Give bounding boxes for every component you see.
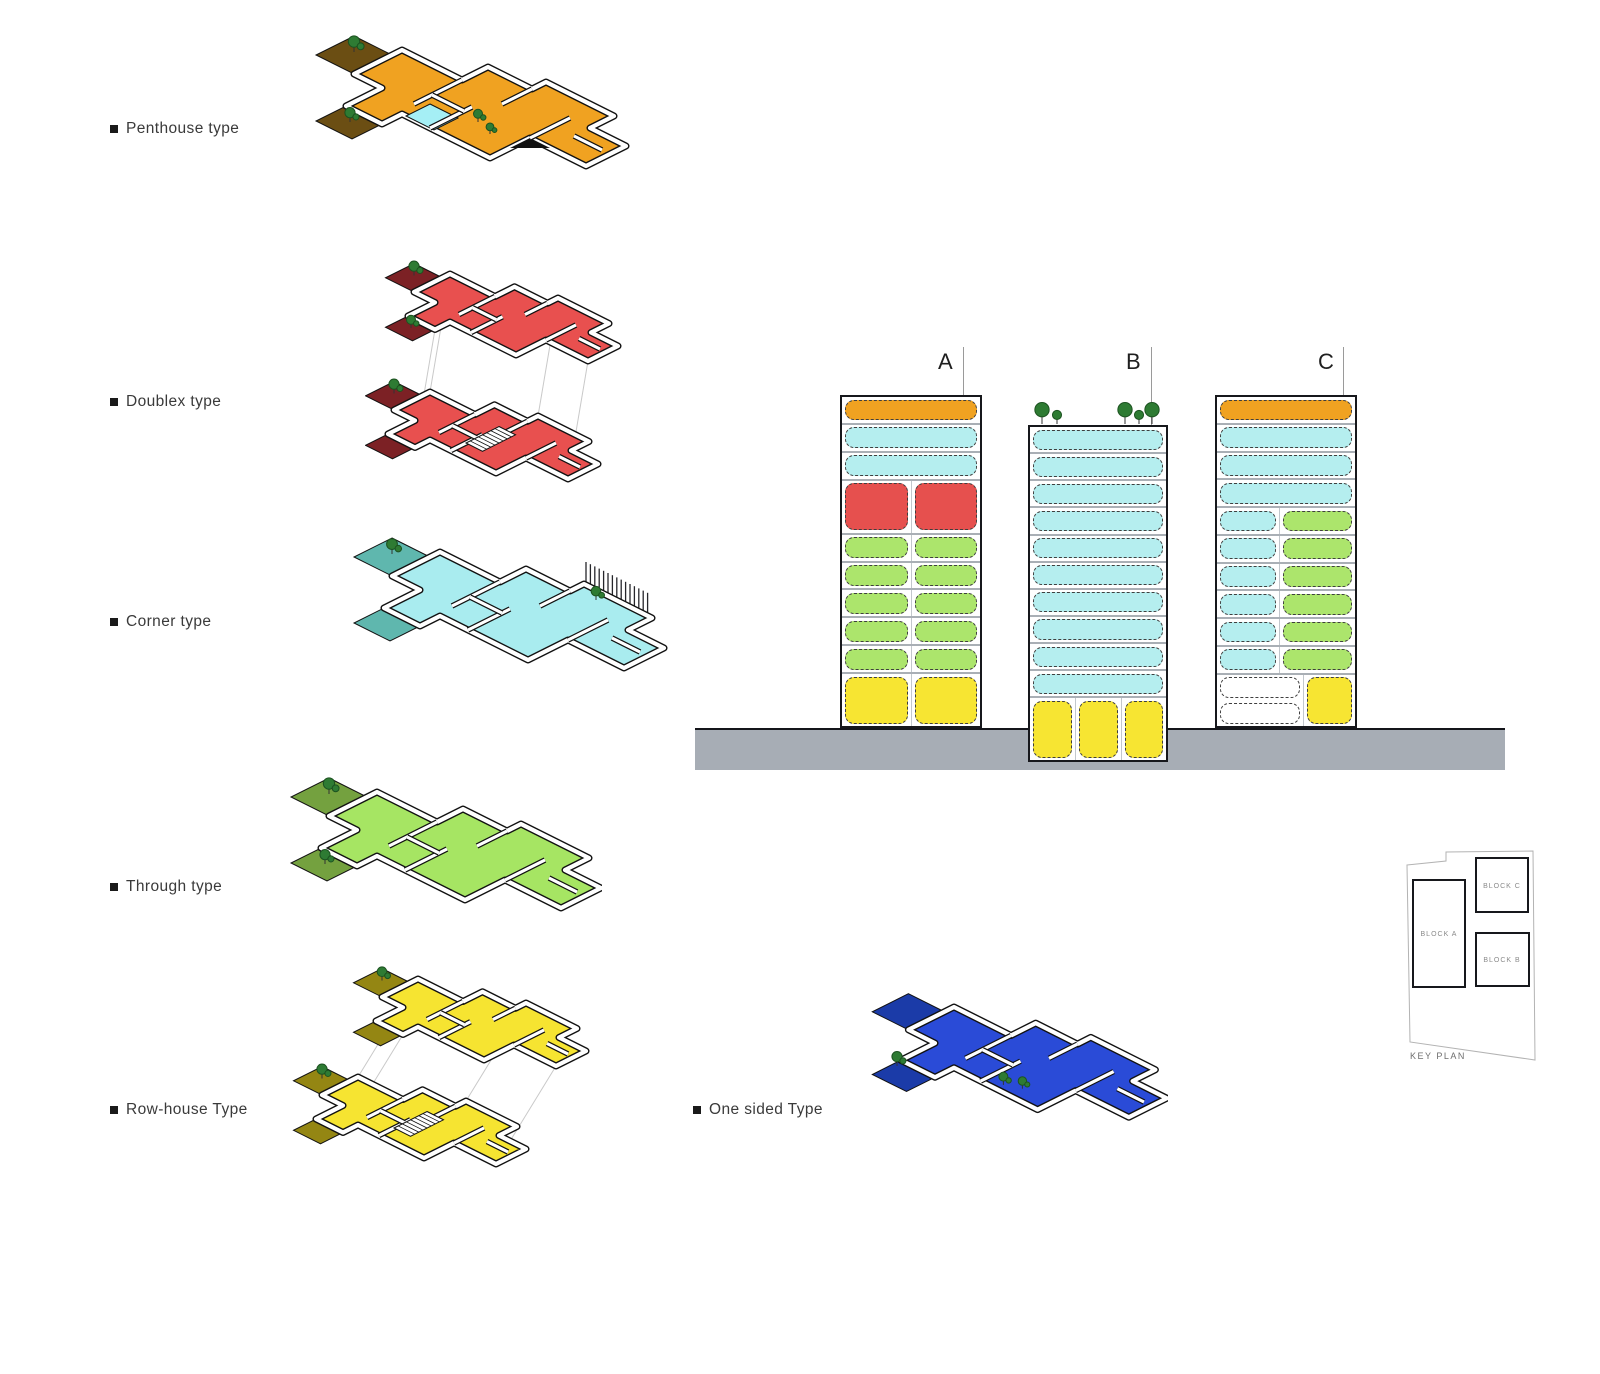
- floor-row: [1217, 589, 1355, 617]
- floor-row: [1217, 506, 1355, 534]
- floor-row: [1030, 588, 1166, 615]
- unit-column: [1217, 425, 1355, 451]
- roof-trees-icon: [1030, 397, 1170, 425]
- unit-column: [1030, 427, 1166, 452]
- unit-yellow: [1125, 701, 1163, 758]
- unit-column: [1217, 508, 1279, 534]
- unit-column: [842, 453, 980, 479]
- floor-row: [1030, 452, 1166, 479]
- unit-green: [845, 537, 908, 558]
- unit-column: [911, 646, 980, 672]
- block-a-tick-line: [963, 347, 964, 395]
- unit-column: [1279, 536, 1355, 562]
- floor-row: [1030, 642, 1166, 669]
- floor-row: [842, 397, 980, 423]
- unit-column: [1030, 536, 1166, 561]
- unit-column: [1303, 675, 1355, 727]
- floor-row: [1030, 534, 1166, 561]
- label-onesided-type: One sided Type: [693, 1101, 823, 1119]
- unit-column: [1075, 698, 1120, 760]
- bullet-square-icon: [110, 398, 118, 406]
- unit-column: [842, 563, 911, 589]
- label-block-c: C: [1318, 349, 1334, 375]
- unit-column: [842, 590, 911, 616]
- unit-red: [915, 483, 977, 530]
- bullet-square-icon: [110, 125, 118, 133]
- floor-row: [842, 451, 980, 479]
- bullet-square-icon: [110, 883, 118, 891]
- type-label-text: Row-house Type: [126, 1101, 248, 1119]
- unit-cyan: [1220, 622, 1276, 643]
- unit-column: [1030, 590, 1166, 615]
- unit-yellow: [1079, 701, 1117, 758]
- type-label-text: Doublex type: [126, 393, 221, 411]
- unit-column: [911, 563, 980, 589]
- floor-row: [1030, 561, 1166, 588]
- unit-green: [1283, 622, 1352, 643]
- unit-cyan: [1220, 649, 1276, 670]
- unit-column: [1030, 454, 1166, 479]
- label-penthouse-type: Penthouse type: [110, 120, 239, 138]
- block-c-tick-line: [1343, 347, 1344, 395]
- unit-green: [1283, 511, 1352, 532]
- unit-column: [842, 674, 911, 726]
- bullet-square-icon: [110, 1106, 118, 1114]
- unit-column: [1030, 563, 1166, 588]
- bullet-square-icon: [693, 1106, 701, 1114]
- floor-row: [1030, 427, 1166, 452]
- floor-row: [1217, 478, 1355, 506]
- unit-cyan: [1033, 647, 1163, 667]
- floor-row: [1030, 506, 1166, 533]
- label-rowhouse-type: Row-house Type: [110, 1101, 248, 1119]
- type-label-text: Through type: [126, 878, 222, 896]
- unit-green: [1283, 566, 1352, 587]
- unit-column: [1217, 675, 1303, 727]
- block-a-section: [840, 395, 982, 728]
- floor-row: [842, 672, 980, 726]
- label-block-a: A: [938, 349, 953, 375]
- unit-green: [915, 621, 977, 642]
- unit-cyan: [1220, 594, 1276, 615]
- unit-column: [1030, 698, 1075, 760]
- unit-green: [915, 537, 977, 558]
- keyplan-title: KEY PLAN: [1410, 1051, 1466, 1061]
- unit-column: [911, 590, 980, 616]
- unit-column: [1217, 564, 1279, 590]
- unit-green: [845, 621, 908, 642]
- label-through-type: Through type: [110, 878, 222, 896]
- architecture-diagram-canvas: Penthouse type Doublex type Corner type …: [0, 0, 1600, 1374]
- floor-row: [842, 644, 980, 672]
- unit-cyan: [1033, 538, 1163, 558]
- unit-orange: [845, 400, 977, 421]
- floor-row: [1217, 397, 1355, 423]
- unit-column: [1030, 644, 1166, 669]
- unit-cyan: [1220, 455, 1352, 476]
- unit-column: [1030, 481, 1166, 506]
- penthouse-type-iso-diagram: [312, 12, 632, 202]
- floor-row: [1030, 696, 1166, 760]
- unit-cyan: [1220, 511, 1276, 532]
- unit-green: [845, 593, 908, 614]
- unit-column: [842, 425, 980, 451]
- floor-row: [1217, 562, 1355, 590]
- unit-cyan: [1033, 430, 1163, 450]
- unit-cyan: [845, 427, 977, 448]
- unit-yellow: [1307, 677, 1352, 724]
- floor-row: [842, 561, 980, 589]
- key-plan: BLOCK A BLOCK C BLOCK B KEY PLAN: [1370, 835, 1545, 1075]
- unit-column: [1217, 480, 1355, 506]
- unit-green: [915, 649, 977, 670]
- unit-column: [842, 646, 911, 672]
- unit-column: [1030, 508, 1166, 533]
- unit-column: [842, 618, 911, 644]
- unit-column: [1279, 591, 1355, 617]
- unit-yellow: [845, 677, 908, 724]
- unit-column: [842, 535, 911, 561]
- unit-green: [845, 565, 908, 586]
- type-label-text: Penthouse type: [126, 120, 239, 138]
- unit-green: [845, 649, 908, 670]
- unit-white: [1220, 677, 1300, 698]
- floor-row: [842, 616, 980, 644]
- unit-column: [1279, 619, 1355, 645]
- unit-column: [1279, 647, 1355, 673]
- keyplan-block-c-label: BLOCK C: [1483, 883, 1521, 890]
- block-c-section: [1215, 395, 1357, 728]
- onesided-type-iso-diagram: [868, 972, 1168, 1162]
- unit-cyan: [1220, 566, 1276, 587]
- floor-row: [842, 479, 980, 533]
- label-doublex-type: Doublex type: [110, 393, 221, 411]
- unit-cyan: [1220, 538, 1276, 559]
- unit-green: [1283, 649, 1352, 670]
- floor-row: [1217, 645, 1355, 673]
- unit-column: [1217, 453, 1355, 479]
- unit-column: [1030, 671, 1166, 696]
- bullet-square-icon: [110, 618, 118, 626]
- corner-type-iso-diagram: [345, 502, 675, 717]
- unit-column: [911, 674, 980, 726]
- unit-column: [1279, 508, 1355, 534]
- unit-cyan: [1033, 484, 1163, 504]
- floor-row: [842, 588, 980, 616]
- floor-row: [1217, 534, 1355, 562]
- doublex-type-iso-diagram: [365, 245, 635, 507]
- unit-green: [915, 593, 977, 614]
- floor-row: [842, 423, 980, 451]
- label-corner-type: Corner type: [110, 613, 211, 631]
- type-label-text: One sided Type: [709, 1101, 823, 1119]
- floor-row: [1217, 673, 1355, 727]
- label-block-b: B: [1126, 349, 1141, 375]
- unit-red: [845, 483, 908, 530]
- keyplan-block-a-label: BLOCK A: [1421, 931, 1458, 938]
- unit-column: [911, 618, 980, 644]
- unit-cyan: [1033, 592, 1163, 612]
- unit-column: [1217, 536, 1279, 562]
- unit-green: [1283, 538, 1352, 559]
- unit-column: [842, 481, 911, 533]
- floor-row: [1030, 615, 1166, 642]
- through-type-iso-diagram: [282, 752, 602, 957]
- floor-row: [1217, 451, 1355, 479]
- unit-column: [1217, 619, 1279, 645]
- unit-column: [1121, 698, 1166, 760]
- unit-column: [1279, 564, 1355, 590]
- block-b-section: [1028, 425, 1168, 762]
- keyplan-block-b-label: BLOCK B: [1483, 957, 1520, 964]
- unit-column: [911, 481, 980, 533]
- floor-row: [1217, 423, 1355, 451]
- unit-cyan: [1220, 427, 1352, 448]
- unit-column: [1217, 591, 1279, 617]
- unit-column: [1030, 617, 1166, 642]
- unit-white: [1220, 703, 1300, 724]
- floor-row: [1217, 617, 1355, 645]
- unit-yellow: [1033, 701, 1072, 758]
- unit-green: [1283, 594, 1352, 615]
- unit-cyan: [845, 455, 977, 476]
- unit-column: [1217, 647, 1279, 673]
- unit-cyan: [1033, 457, 1163, 477]
- unit-column: [1217, 397, 1355, 423]
- floor-row: [1030, 669, 1166, 696]
- unit-cyan: [1033, 511, 1163, 531]
- unit-cyan: [1033, 565, 1163, 585]
- unit-column: [842, 397, 980, 423]
- type-label-text: Corner type: [126, 613, 211, 631]
- floor-row: [842, 533, 980, 561]
- unit-green: [915, 565, 977, 586]
- unit-cyan: [1220, 483, 1352, 504]
- rowhouse-type-iso-diagram: [288, 952, 608, 1197]
- unit-column: [911, 535, 980, 561]
- floor-row: [1030, 479, 1166, 506]
- unit-orange: [1220, 400, 1352, 421]
- unit-yellow: [915, 677, 977, 724]
- unit-cyan: [1033, 619, 1163, 639]
- unit-cyan: [1033, 674, 1163, 694]
